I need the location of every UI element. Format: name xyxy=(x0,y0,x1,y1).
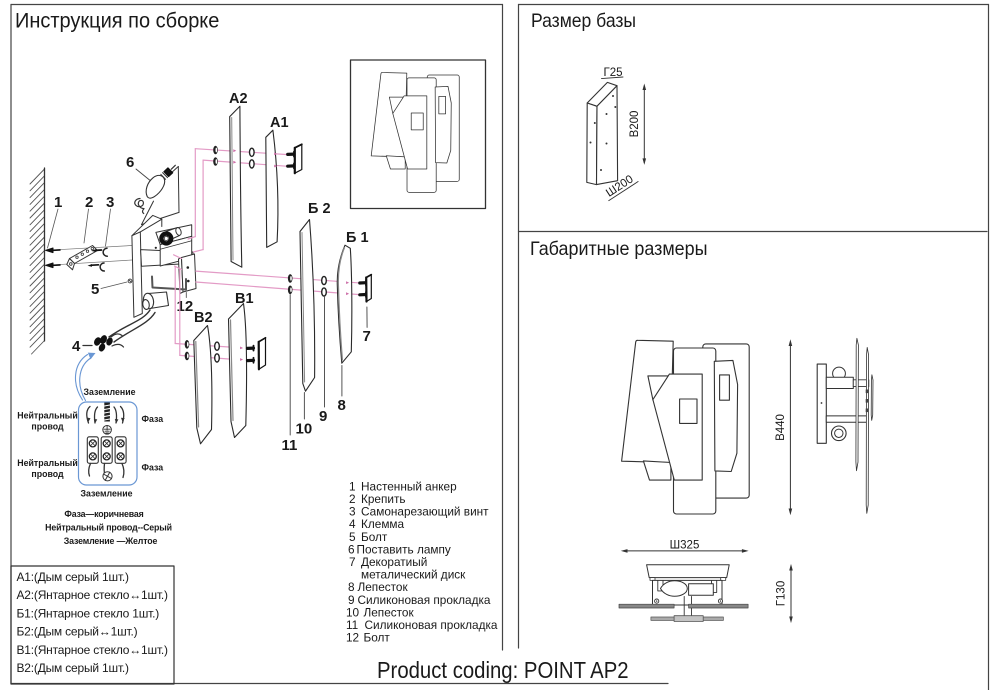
svg-text:В2: В2 xyxy=(194,310,213,326)
svg-text:9: 9 xyxy=(319,408,327,425)
svg-text:В2:(Дым серый 1шт.): В2:(Дым серый 1шт.) xyxy=(17,661,130,675)
svg-text:12: 12 xyxy=(346,631,359,645)
svg-text:11: 11 xyxy=(282,437,298,454)
svg-text:Б 2: Б 2 xyxy=(308,201,331,217)
svg-text:A1: A1 xyxy=(270,115,289,131)
svg-text:Фаза—коричневая: Фаза—коричневая xyxy=(64,509,143,519)
svg-text:8: 8 xyxy=(338,397,346,414)
svg-text:В200: В200 xyxy=(629,111,641,138)
svg-text:провод: провод xyxy=(31,469,64,479)
svg-text:Б2:(Дым серый↔1шт.): Б2:(Дым серый↔1шт.) xyxy=(17,625,138,639)
svg-text:A2: A2 xyxy=(229,91,248,107)
svg-text:7: 7 xyxy=(363,328,371,345)
svg-text:1: 1 xyxy=(54,194,62,211)
svg-text:Б1:(Янтарное стекло 1шт.): Б1:(Янтарное стекло 1шт.) xyxy=(17,606,160,620)
svg-text:Нейтральный провод--Серый: Нейтральный провод--Серый xyxy=(45,523,172,533)
svg-text:A1:(Дым серый 1шт.): A1:(Дым серый 1шт.) xyxy=(17,570,130,584)
svg-text:4: 4 xyxy=(72,338,81,355)
svg-text:Product coding: POINT AP2: Product coding: POINT AP2 xyxy=(377,657,629,684)
svg-text:7: 7 xyxy=(349,555,356,569)
svg-text:6: 6 xyxy=(126,154,134,171)
svg-text:В1:(Янтарное стекло↔1шт.): В1:(Янтарное стекло↔1шт.) xyxy=(17,643,169,657)
svg-text:Габаритные размеры: Габаритные размеры xyxy=(530,237,708,259)
svg-text:Заземление: Заземление xyxy=(80,489,132,499)
svg-text:Заземление —Желтое: Заземление —Желтое xyxy=(64,536,158,546)
svg-text:Нейтральный: Нейтральный xyxy=(17,411,77,421)
svg-text:Фаза: Фаза xyxy=(142,463,164,473)
svg-text:провод: провод xyxy=(31,422,64,432)
svg-text:12: 12 xyxy=(177,298,194,315)
svg-text:Б 1: Б 1 xyxy=(346,230,369,246)
svg-text:10: 10 xyxy=(296,421,313,438)
svg-text:A2:(Янтарное стекло↔1шт.): A2:(Янтарное стекло↔1шт.) xyxy=(17,588,169,602)
svg-text:5: 5 xyxy=(91,281,99,298)
svg-text:Инструкция по сборке: Инструкция по сборке xyxy=(15,9,219,33)
svg-text:В440: В440 xyxy=(775,414,787,441)
svg-text:В1: В1 xyxy=(235,291,254,307)
svg-text:Заземление: Заземление xyxy=(83,387,135,397)
svg-text:Размер базы: Размер базы xyxy=(531,9,636,31)
svg-text:2: 2 xyxy=(85,194,93,211)
svg-text:Г130: Г130 xyxy=(776,581,788,606)
svg-text:Ш325: Ш325 xyxy=(670,540,700,552)
svg-text:3: 3 xyxy=(106,194,114,211)
svg-text:Фаза: Фаза xyxy=(142,414,164,424)
svg-text:Болт: Болт xyxy=(364,631,391,645)
svg-text:Нейтральный: Нейтральный xyxy=(17,458,77,468)
